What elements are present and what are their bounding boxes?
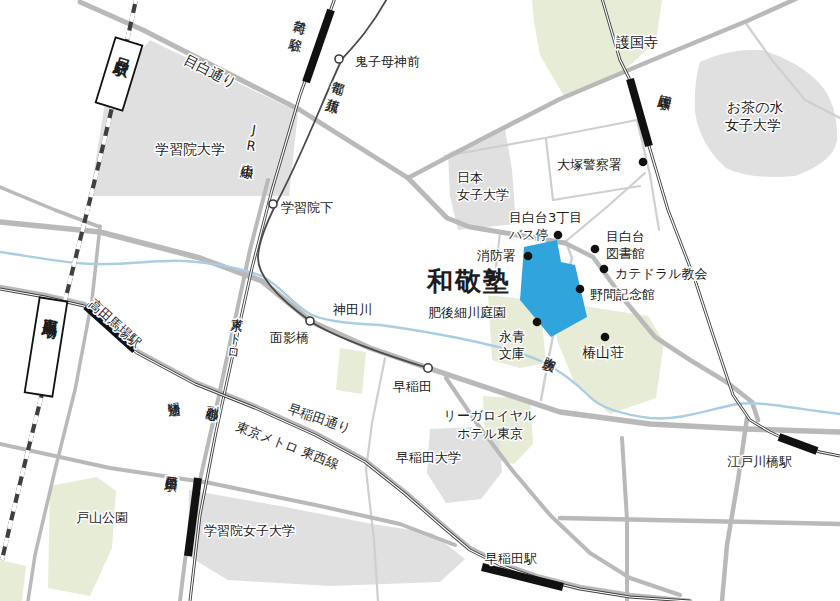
area-toyama-park-corner [0,560,26,601]
map-canvas: JR山手線 目白通り 雑司ヶ谷駅 都電 荒川線 護国寺駅 高田馬場駅 東京メトロ… [0,0,840,601]
label-otsuka-police: 大塚警察署 [557,157,622,172]
label-eisei-bunko-line2: 文庫 [499,346,525,361]
road-mejirodai-grid-3 [546,139,553,200]
label-ochanomizu-line1: お茶の水 [727,99,784,115]
zoshigaya-station-bar [306,10,331,82]
label-cathedral: カテドラル教会 [615,266,708,281]
label-tokyo-metro: 東京メトロ [226,307,247,358]
gakushuinshita-stop-circle [269,200,277,208]
label-mejirodai-bus-line2: バス停 [508,227,549,242]
label-mejirodai-library-line2: 図書館 [606,246,645,261]
label-edogawabashi-station: 江戸川橋駅 [727,454,792,469]
label-rihga-line2: ホテル東京 [457,426,523,441]
label-nihon-joshi-line1: 日本 [457,170,483,185]
label-nihon-joshi-line2: 女子大学 [457,187,509,202]
label-fire-station: 消防署 [477,248,516,263]
chinzanso-dot [601,333,610,342]
omokagebashi-stop-circle [306,317,314,325]
label-gakushuin-university: 学習院大学 [155,141,225,157]
label-toyama-park: 戸山公園 [76,510,128,525]
label-wakeijuku-title: 和敬塾 [426,266,511,296]
label-gokokuji-temple: 護国寺 [616,34,658,50]
label-mejirodai-bus-line1: 目白台3丁目 [509,210,582,225]
label-zoshigaya-station: 雑司ヶ谷駅 [287,9,311,53]
access-map: JR山手線 目白通り 雑司ヶ谷駅 都電 荒川線 護国寺駅 高田馬場駅 東京メトロ… [0,0,840,601]
label-omokagebashi: 面影橋 [270,330,309,345]
label-meiji-dori: 明治通り [165,391,182,417]
label-gakushuinshita: 学習院下 [281,200,333,215]
otsuka-police-dot [639,158,648,167]
road-south-horizontal [560,518,840,524]
road-edogawabashi-south [722,418,747,601]
fire-station-dot [524,252,533,261]
label-waseda-university: 早稲田大学 [396,450,461,465]
road-mejirodai-grid-1 [445,120,637,156]
label-waseda-dori: 早稲田通り [286,401,353,436]
gokokuji-station-bar [630,79,649,146]
waseda-stop-circle [424,364,432,372]
area-toyama-park [48,477,116,596]
label-rihga-line1: リーガロイヤル [444,408,537,423]
area-gakushuin-womens-university [188,490,465,586]
bus-stop-dot [554,231,563,240]
kishibojinmae-stop-circle [335,55,343,63]
takadanobaba-box: 高田馬場 [25,297,68,396]
label-chinzanso: 椿山荘 [582,344,624,360]
label-ochanomizu-line2: 女子大学 [725,117,781,133]
label-kanda-river: 神田川 [332,302,372,317]
noma-memorial-dot [576,285,585,294]
area-small-park-waseda [336,348,366,394]
label-takadanobaba-station: 高田馬場駅 [86,296,144,351]
label-waseda-stop: 早稲田 [393,379,432,394]
label-gokokuji-station: 護国寺駅 [656,83,677,112]
label-kishibojinmae: 鬼子母神前 [355,54,420,69]
label-mejirodai-library-line1: 目白台 [606,229,645,244]
edogawabashi-station-bar [779,437,817,451]
cathedral-dot [600,265,609,274]
label-eisei-bunko-line1: 永青 [499,329,525,344]
label-waseda-station: 早稲田駅 [485,551,537,566]
label-higo-hosokawa: 肥後細川庭園 [428,305,506,320]
label-gakushuin-womens: 学習院女子大学 [204,523,295,538]
library-dot [591,245,600,254]
eisei-bunko-dot [533,318,542,327]
label-noma-memorial: 野間記念館 [590,287,655,302]
